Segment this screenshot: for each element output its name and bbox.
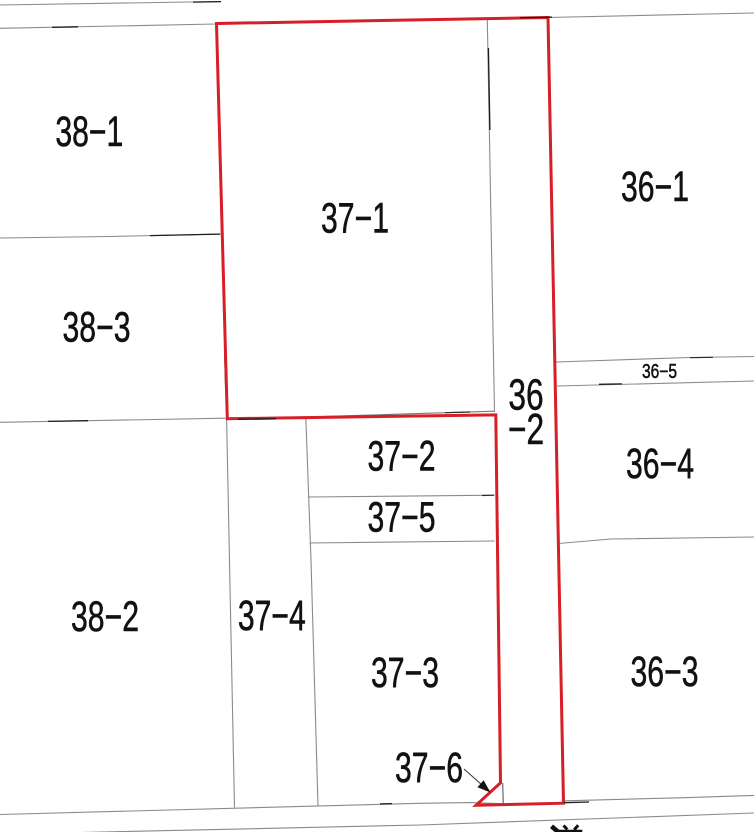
svg-text:37−6: 37−6 bbox=[395, 744, 463, 791]
svg-text:37−1: 37−1 bbox=[321, 194, 389, 241]
svg-text:37−4: 37−4 bbox=[238, 592, 306, 639]
svg-text:36−3: 36−3 bbox=[631, 648, 699, 695]
svg-text:36−1: 36−1 bbox=[621, 163, 689, 210]
svg-text:38−3: 38−3 bbox=[63, 303, 131, 350]
svg-text:37−3: 37−3 bbox=[371, 649, 439, 696]
svg-text:38−2: 38−2 bbox=[71, 593, 139, 640]
svg-text:37−5: 37−5 bbox=[368, 493, 436, 540]
svg-text:38−1: 38−1 bbox=[55, 108, 123, 155]
svg-text:36−5: 36−5 bbox=[642, 360, 677, 382]
svg-text:37−2: 37−2 bbox=[368, 432, 436, 479]
svg-text:−2: −2 bbox=[508, 405, 544, 454]
svg-text:36−4: 36−4 bbox=[626, 440, 694, 487]
